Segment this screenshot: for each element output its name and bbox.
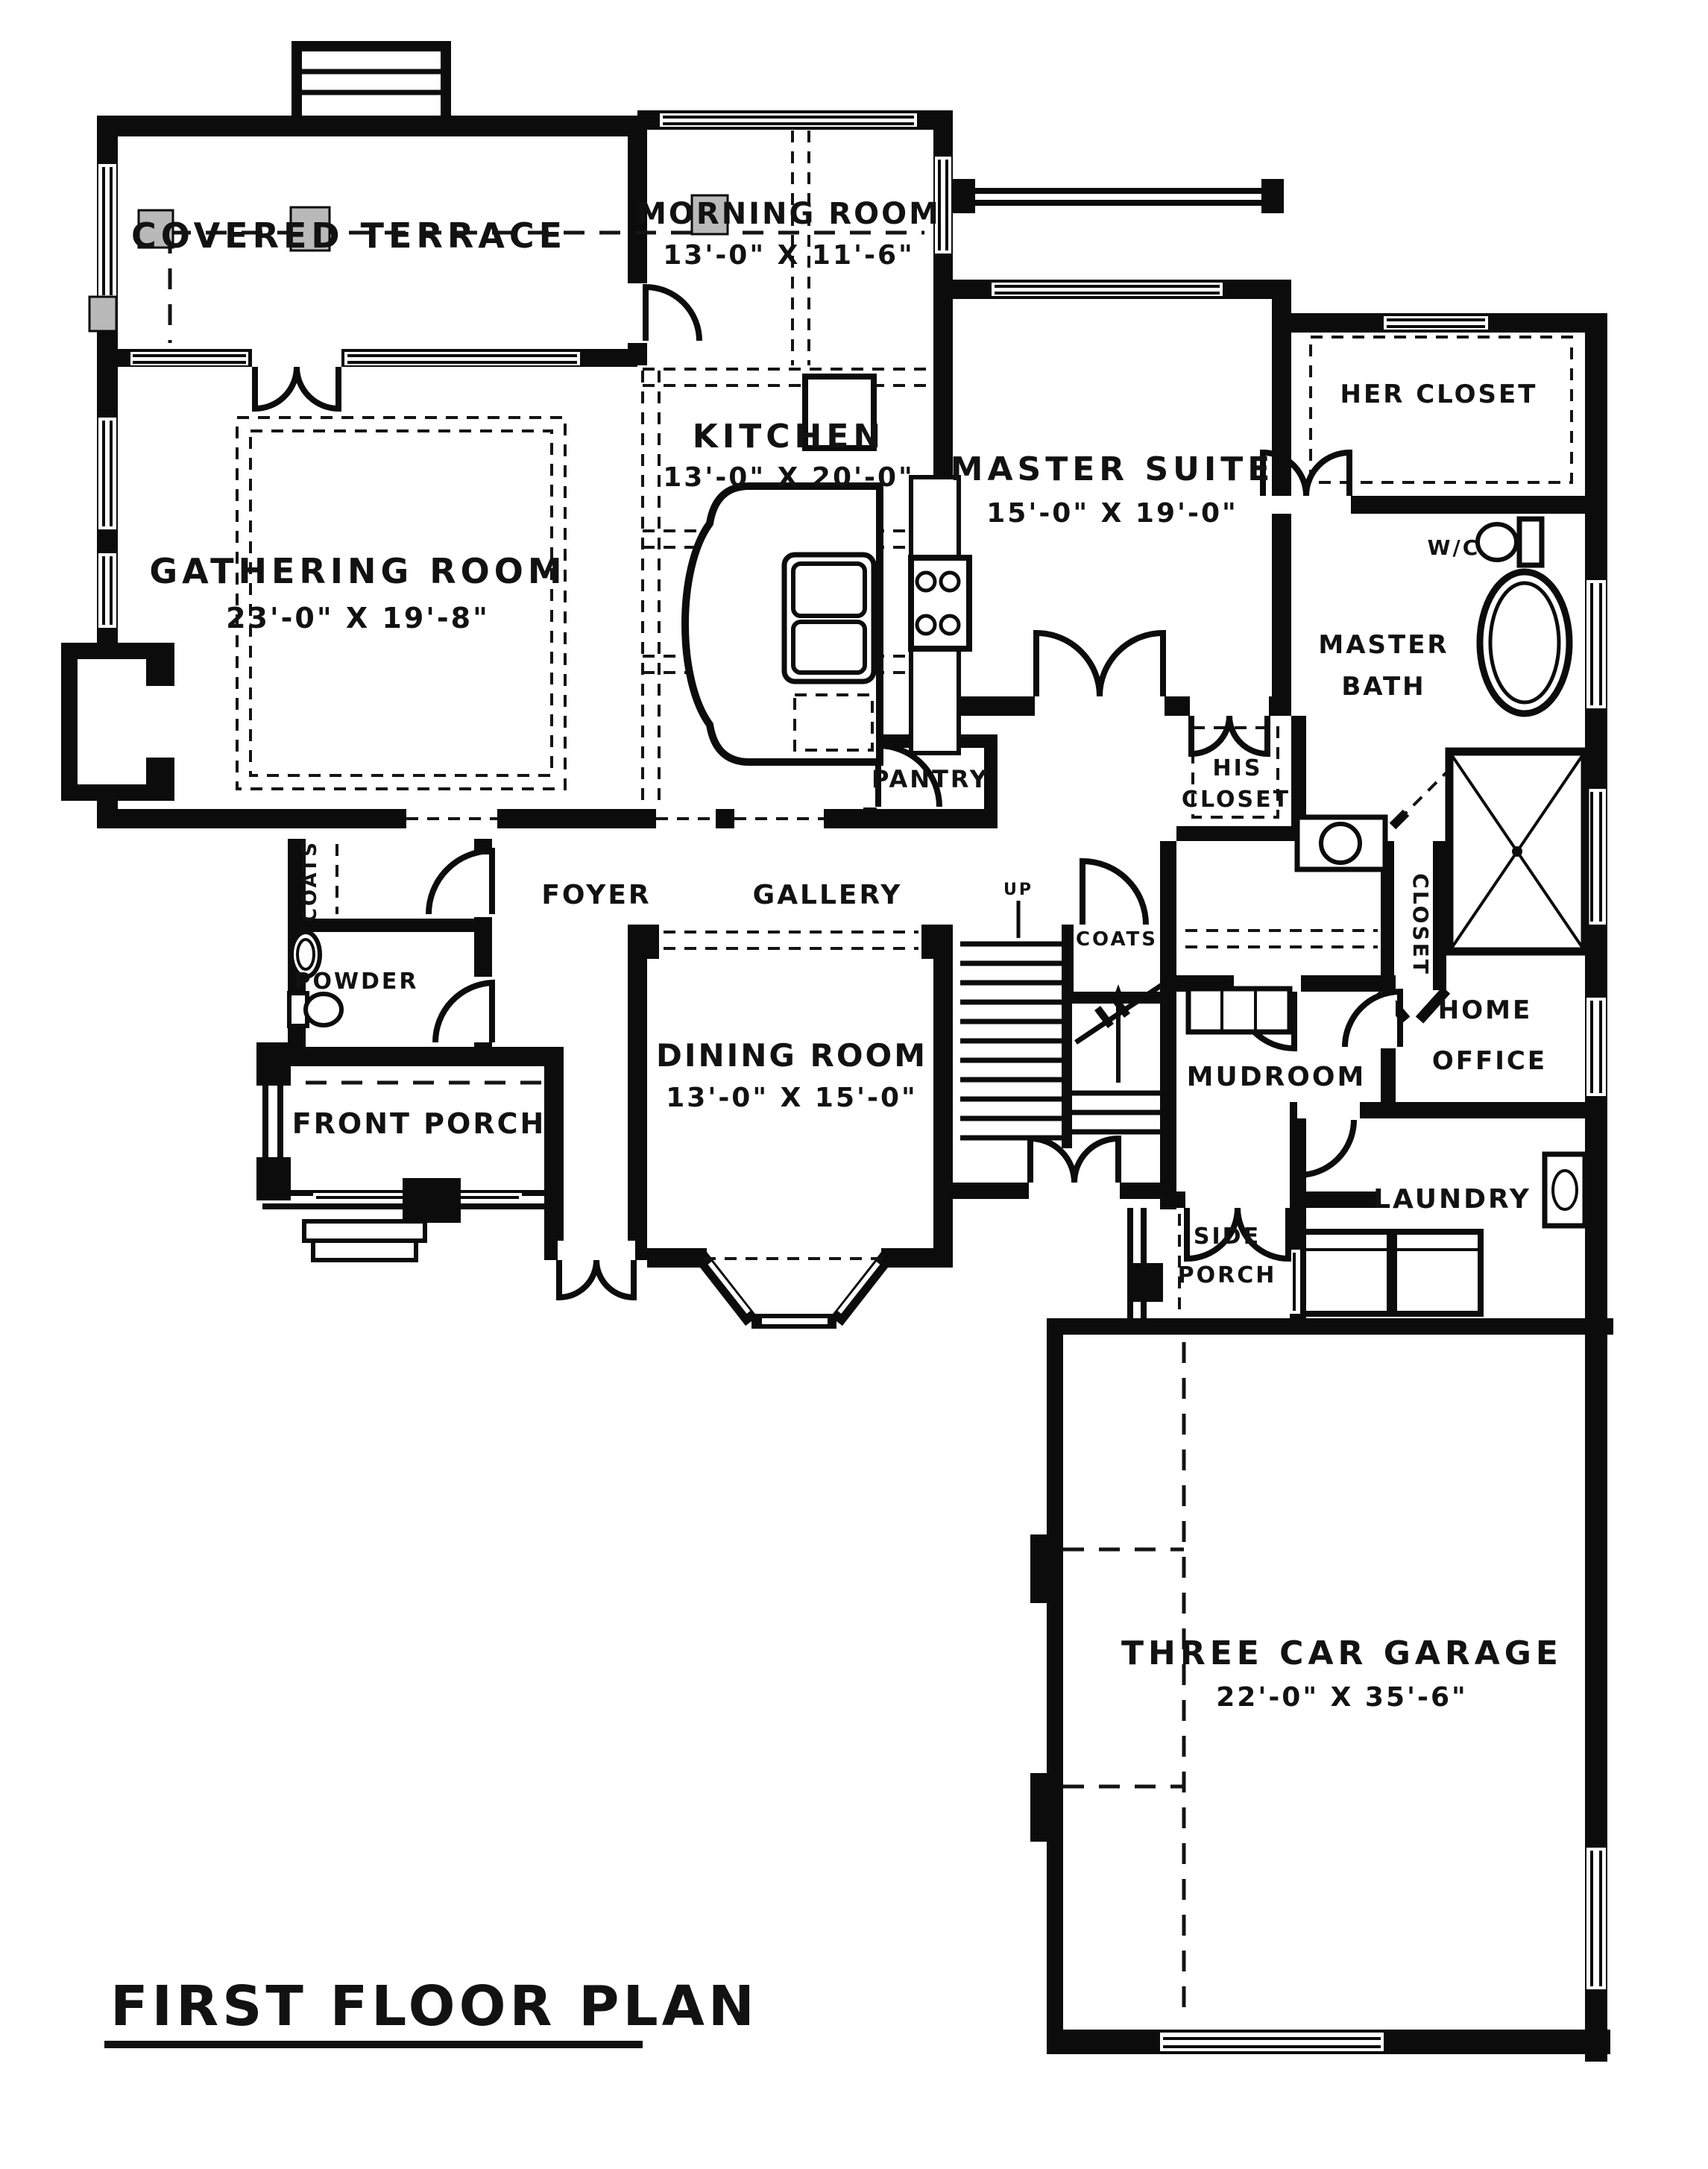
- floor-plan-page: COVERED TERRACE MORNING ROOM 13'-0" X 11…: [0, 0, 1708, 2169]
- hall-closet-label: CLOSET: [1408, 873, 1433, 976]
- his-closet-label-2: CLOSET: [1182, 787, 1291, 813]
- pantry-label: PANTRY: [872, 765, 989, 793]
- gathering-room-label: GATHERING ROOM: [149, 551, 566, 591]
- dining-room-label: DINING ROOM: [656, 1037, 927, 1074]
- her-closet-label: HER CLOSET: [1340, 380, 1538, 409]
- morning-room-label: MORNING ROOM: [637, 197, 941, 231]
- kitchen-dims: 13'-0" X 20'-0": [663, 462, 915, 493]
- stair-coats-label: COATS: [1076, 928, 1158, 951]
- toilet: [1478, 519, 1542, 565]
- garage-label: THREE CAR GARAGE: [1121, 1634, 1563, 1672]
- plan-title-group: FIRST FLOOR PLAN: [104, 1974, 758, 2044]
- home-office-label-1: HOME: [1438, 995, 1532, 1025]
- fireplace: [61, 643, 174, 801]
- gathering-room-dims: 23'-0" X 19'-8": [226, 602, 490, 635]
- master-suite-label: MASTER SUITE: [951, 450, 1275, 488]
- his-closet-label-1: HIS: [1213, 755, 1263, 781]
- home-office-label-2: OFFICE: [1432, 1046, 1547, 1076]
- side-porch-label-2: PORCH: [1178, 1262, 1277, 1288]
- covered-terrace-label: COVERED TERRACE: [131, 215, 567, 256]
- water-closet-label: W/C: [1428, 535, 1481, 560]
- stair-up-label: UP: [1003, 881, 1033, 899]
- garage-window: [1160, 2033, 1384, 2051]
- floor-plan-drawing: COVERED TERRACE MORNING ROOM 13'-0" X 11…: [0, 0, 1708, 2169]
- powder-toilet: [289, 993, 341, 1026]
- mudroom-label: MUDROOM: [1187, 1062, 1367, 1092]
- morning-room-dims: 13'-0" X 11'-6": [663, 240, 915, 271]
- foyer-label: FOYER: [541, 880, 651, 910]
- powder-label: POWDER: [294, 969, 418, 995]
- range-cooktop: [911, 477, 969, 753]
- laundry-sink: [1545, 1154, 1585, 1226]
- kitchen-island: [685, 486, 880, 762]
- wall-post: [89, 297, 116, 331]
- bathtub: [1480, 572, 1569, 714]
- master-bath-label-1: MASTER: [1318, 630, 1449, 660]
- master-suite-dims: 15'-0" X 19'-0": [986, 498, 1238, 529]
- kitchen-label: KITCHEN: [693, 418, 885, 456]
- master-suite-window: [992, 283, 1223, 296]
- master-bath-label-2: BATH: [1341, 672, 1425, 702]
- washer: [1303, 1232, 1390, 1314]
- dining-room-dims: 13'-0" X 15'-0": [666, 1083, 918, 1113]
- entry-coats-label: COATS: [299, 840, 321, 922]
- front-porch-label: FRONT PORCH: [292, 1107, 546, 1140]
- mudroom-bench: [1188, 989, 1290, 1032]
- her-closet-window: [1384, 316, 1488, 330]
- garage-dims: 22'-0" X 35'-6": [1216, 1682, 1468, 1713]
- laundry-label: LAUNDRY: [1373, 1184, 1531, 1215]
- terrace-windows: [130, 352, 580, 365]
- side-porch-label-1: SIDE: [1194, 1224, 1261, 1250]
- dryer: [1394, 1232, 1481, 1314]
- plan-title: FIRST FLOOR PLAN: [110, 1974, 758, 2039]
- bath-vanity: [1297, 817, 1385, 869]
- gallery-label: GALLERY: [753, 880, 903, 910]
